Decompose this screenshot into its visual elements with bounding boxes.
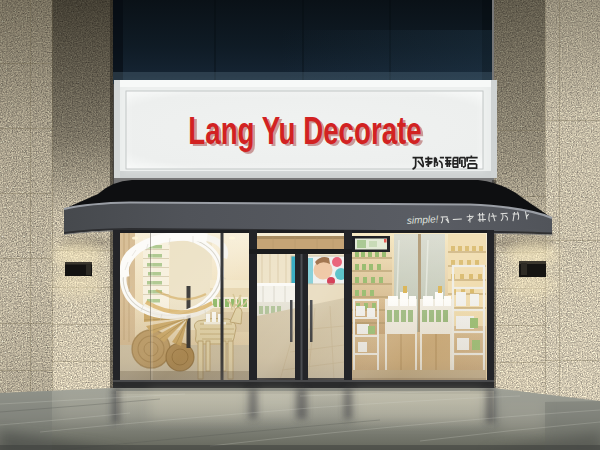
svg-text:simple!: simple!	[406, 213, 438, 226]
svg-text:Lang Yu Decorate: Lang Yu Decorate	[188, 108, 421, 152]
